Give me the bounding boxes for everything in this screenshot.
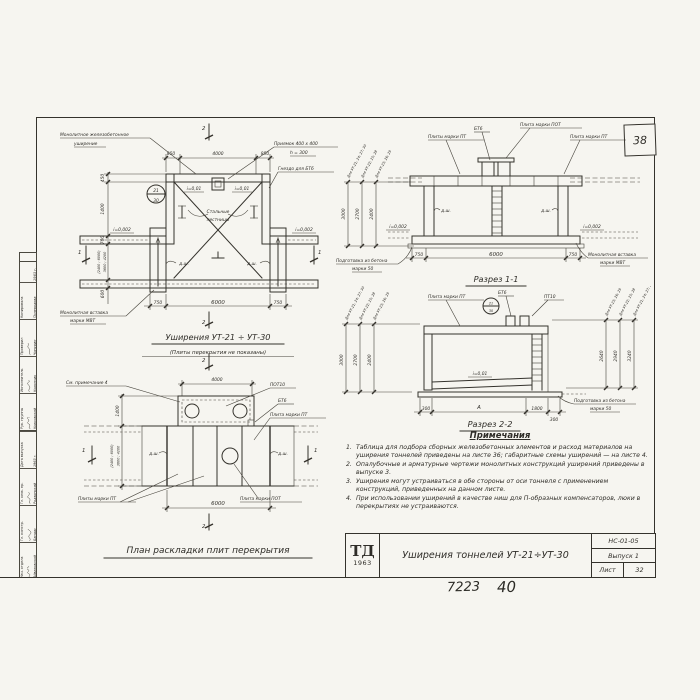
stamp-cell: Проверил Чипурин [20, 319, 37, 356]
label-plates-pt: Плиты марки ПТ [78, 474, 204, 502]
svg-text:Монолитная вставка: Монолитная вставка [60, 310, 108, 316]
pit-square [212, 178, 224, 190]
handwritten-number-2: 40 [497, 578, 517, 596]
svg-text:(2400 ; 6000): (2400 ; 6000) [110, 444, 114, 467]
svg-text:А: А [476, 405, 481, 411]
svg-text:6000: 6000 [211, 300, 225, 306]
svg-text:300: 300 [422, 406, 431, 412]
joint-label: д.ш. [540, 209, 551, 214]
section1-height-dims: Для УТ-21; 24; 27; 30 Для УТ-22; 25; 28 … [341, 144, 414, 248]
section-mark-1-left: 1 [78, 246, 90, 264]
signature-scribble [27, 417, 32, 429]
slope-label: i=0,002 [389, 224, 407, 230]
svg-text:См. примечание 4: См. примечание 4 [66, 380, 108, 386]
plan-top-drawing: 2 850 4000 850 [58, 116, 343, 362]
stamp-block-authors: Рук. группы Красовский Исполнитель Корон… [20, 261, 37, 430]
svg-text:2700: 2700 [353, 354, 359, 365]
label-monolithic-insert: Монолитная вставка марки МВТ [576, 243, 648, 266]
svg-text:Плита марки ПТ: Плита марки ПТ [428, 294, 466, 300]
svg-text:План раскладки плит перекрытия: План раскладки плит перекрытия [126, 546, 290, 556]
joint-label: д.ш. [246, 262, 257, 267]
svg-text:Уширения УТ-21 ÷ УТ-30: Уширения УТ-21 ÷ УТ-30 [165, 332, 270, 342]
svg-text:300: 300 [550, 417, 559, 423]
label-bt6: БТ6 [474, 126, 490, 160]
label-plate-pt: Плита марки ПТ [428, 294, 484, 326]
plan-bottom-drawing: 2 4000 [58, 350, 343, 572]
joint-label: д.ш. [148, 452, 159, 457]
svg-text:21: 21 [489, 302, 493, 306]
svg-text:3600 ; 4200: 3600 ; 4200 [103, 252, 107, 273]
stamp-year: 1963 г. [20, 262, 37, 282]
label-plates-pt: Плиты марки ПТ [428, 134, 484, 174]
section2-height-dims-right: Для УТ-23; 26; 29 Для УТ-22; 25; 28 Для … [552, 286, 653, 390]
section2-height-dims-left: Для УТ-21; 24; 27; 30 Для УТ-22; 25; 28 … [339, 286, 420, 394]
slope-label: i=0,01 [235, 186, 250, 192]
svg-text:2400: 2400 [369, 208, 375, 219]
stamp-cell: Нач. отдела Айвазовский [20, 542, 37, 578]
section-mark-2-top: 2 [202, 124, 213, 140]
svg-text:Монолитное железобетонное: Монолитное железобетонное [60, 132, 129, 138]
detail-mark-circle: 21 30 [483, 298, 499, 314]
svg-text:1800: 1800 [531, 406, 542, 412]
svg-text:750: 750 [569, 252, 578, 258]
svg-text:750: 750 [154, 300, 163, 306]
svg-text:4000: 4000 [212, 151, 223, 157]
section-mark-1-right: 1 [310, 246, 321, 264]
label-bt6: БТ6 [255, 398, 294, 422]
svg-text:Плиты марки ПТ: Плиты марки ПТ [428, 134, 466, 140]
svg-text:21: 21 [153, 188, 159, 194]
stamp-cell: Копировала Полеводова [20, 282, 37, 319]
section-mark-1-left: 1 [82, 446, 96, 464]
stamp-cell: Дата выпуска 1963 г. [20, 431, 37, 468]
sheet-number: 32 [624, 563, 655, 577]
signature-scribble [27, 343, 32, 355]
svg-text:1: 1 [82, 448, 85, 454]
notes-section: Примечания 1. Таблица для подбора сборны… [346, 431, 654, 512]
slope-label: i=0,01 [187, 186, 202, 192]
svg-text:2: 2 [202, 524, 206, 530]
svg-text:Подготовка из бетона: Подготовка из бетона [336, 258, 388, 264]
svg-text:750: 750 [274, 300, 283, 306]
logo-year: 1963 [353, 559, 372, 567]
svg-text:марки МВТ: марки МВТ [600, 260, 625, 266]
joint-label: д.ш. [440, 209, 451, 214]
drawing-title: Уширения тоннелей УТ-21÷УТ-30 [380, 534, 591, 577]
svg-text:700: 700 [100, 236, 106, 245]
sheet-label: Лист [592, 563, 624, 577]
svg-text:2400: 2400 [367, 354, 373, 365]
section1-title: Разрез 1-1 [466, 274, 526, 286]
label-prep-concrete: Подготовка из бетона марки 50 [558, 396, 636, 412]
plan-top-dim-bottom: 750 6000 750 [144, 294, 292, 310]
slope-label: i=0,002 [583, 224, 601, 230]
stairs-label: Стальные [207, 209, 230, 215]
label-monolithic-widening: Монолитное железобетонное уширение [60, 132, 196, 174]
svg-text:Плита марки ПТ: Плита марки ПТ [570, 134, 608, 140]
svg-text:4000: 4000 [211, 377, 222, 383]
svg-text:2700: 2700 [355, 208, 361, 219]
note-item: 3. Уширения могут устраиваться в обе сто… [346, 478, 654, 494]
ground-lines [388, 178, 640, 238]
label-socket-bt6: Гнездо для БТ6 [269, 166, 334, 188]
svg-text:БТ6: БТ6 [498, 290, 507, 296]
svg-text:6000: 6000 [489, 252, 503, 258]
svg-text:марки 50: марки 50 [352, 266, 373, 272]
svg-text:750: 750 [415, 252, 424, 258]
svg-text:Плиты марки ПТ: Плиты марки ПТ [78, 496, 116, 502]
svg-text:30: 30 [489, 309, 493, 313]
plan-bottom-dim-left: 1400 (2400 ; 6000) 3600 ; 4200 [110, 394, 178, 490]
svg-text:3600 ; 4200: 3600 ; 4200 [117, 446, 121, 467]
svg-text:3240: 3240 [627, 350, 633, 361]
svg-text:Плита марки ПТ: Плита марки ПТ [270, 412, 308, 418]
label-plate-pt: Плита марки ПТ [564, 134, 626, 174]
series-code: НС-01-05 [592, 534, 655, 549]
svg-text:Приямок 400 х 400: Приямок 400 х 400 [274, 141, 318, 147]
svg-text:1: 1 [78, 250, 81, 256]
stamp-sidebar: Нач. отдела Айвазовский Гл. констр. Банд… [19, 252, 37, 578]
svg-text:уширение: уширение [73, 142, 98, 147]
label-bt6: БТ6 [498, 290, 514, 316]
section-mark-2-top: 2 [202, 354, 213, 370]
svg-text:2640: 2640 [599, 350, 605, 361]
slope-label: i=0,002 [113, 227, 131, 233]
svg-text:3000: 3000 [341, 208, 347, 219]
svg-text:1: 1 [318, 250, 321, 256]
notes-heading: Примечания [346, 431, 654, 441]
stamp-cell: Гл. констр. Бандас [20, 505, 37, 542]
stairs-label: лестницы [206, 218, 230, 223]
svg-text:БТ6: БТ6 [474, 126, 483, 132]
ladder [532, 334, 548, 392]
svg-text:6000: 6000 [211, 501, 225, 507]
signature-scribble [27, 380, 32, 392]
label-plate-pot: Плита марки ПОТ [234, 464, 302, 502]
note-item: 4. При использовании уширений в качестве… [346, 495, 654, 511]
signature-scribble [27, 492, 32, 504]
svg-text:2940: 2940 [613, 350, 619, 361]
title-block: ТД 1963 Уширения тоннелей УТ-21÷УТ-30 НС… [345, 533, 656, 578]
svg-text:1400: 1400 [100, 203, 106, 214]
handwritten-number-1: 7223 [447, 580, 480, 596]
logo-td: ТД [350, 544, 375, 559]
svg-text:2: 2 [202, 126, 206, 132]
svg-text:ПОТ10: ПОТ10 [270, 382, 285, 388]
issue-label: Выпуск 1 [592, 549, 655, 564]
stamp-rotated-strip: Нач. отдела Айвазовский Гл. констр. Банд… [20, 253, 37, 578]
section2-structure [418, 316, 586, 397]
svg-text:(2400 ; 6000): (2400 ; 6000) [97, 250, 101, 273]
svg-text:h = 300: h = 300 [290, 150, 308, 156]
svg-text:450: 450 [100, 174, 106, 183]
section-1-drawing: Для УТ-21; 24; 27; 30 Для УТ-22; 25; 28 … [334, 116, 656, 294]
stamp-block-approvals: Нач. отдела Айвазовский Гл. констр. Банд… [20, 430, 37, 578]
section-mark-2-bottom: 2 [202, 312, 213, 328]
svg-text:Плита марки ПОТ: Плита марки ПОТ [240, 496, 281, 502]
title-block-logo: ТД 1963 [346, 534, 380, 577]
section-2-drawing: Для УТ-21; 24; 27; 30 Для УТ-22; 25; 28 … [334, 286, 656, 438]
note-item: 1. Таблица для подбора сборных железобет… [346, 444, 654, 460]
svg-text:Подготовка из бетона: Подготовка из бетона [574, 398, 626, 404]
svg-text:марки МВТ: марки МВТ [70, 318, 95, 324]
svg-text:Гнездо для БТ6: Гнездо для БТ6 [278, 166, 314, 172]
section-mark-2-bottom: 2 [202, 514, 213, 530]
svg-text:Плита марки ПОТ: Плита марки ПОТ [520, 122, 561, 128]
svg-text:Монолитная вставка: Монолитная вставка [588, 252, 636, 258]
svg-text:1400: 1400 [115, 405, 121, 416]
svg-text:850: 850 [261, 151, 270, 157]
widening-plates [178, 396, 254, 426]
note-item: 2. Опалубочные и арматурные чертежи моно… [346, 461, 654, 477]
notes-list: 1. Таблица для подбора сборных железобет… [346, 444, 654, 511]
stamp-cell: Исполнитель Корончик [20, 356, 37, 393]
joint-label: д.ш. [178, 262, 189, 267]
stamp-cell: Гл. инж. пр. Родзинский [20, 468, 37, 505]
svg-text:2: 2 [202, 358, 206, 364]
drawing-sheet: 38 Нач. отдела Айвазовский Гл. констр. Б… [0, 0, 700, 700]
title-block-codes: НС-01-05 Выпуск 1 Лист 32 [591, 534, 655, 577]
slope-label: i=0,002 [295, 227, 313, 233]
label-see-note: См. примечание 4 [66, 380, 180, 402]
joint-label: д.ш. [277, 452, 288, 457]
detail-mark-circle: 21 30 [147, 185, 165, 204]
label-monolithic-insert: Монолитная вставка марки МВТ [60, 290, 154, 324]
section-mark-1-right: 1 [304, 446, 317, 464]
svg-text:30: 30 [153, 198, 159, 204]
plan-bottom-dim-top: 4000 [178, 377, 256, 396]
svg-text:ПТ10: ПТ10 [544, 294, 556, 300]
plan-bottom-title: План раскладки плит перекрытия [104, 546, 312, 558]
section1-dim-bottom: 750 6000 750 [406, 248, 586, 262]
label-prep-concrete: Подготовка из бетона марки 50 [336, 247, 412, 272]
svg-text:Разрез 2-2: Разрез 2-2 [468, 419, 513, 429]
insert-pilasters [150, 228, 286, 292]
plan-top-dim-top: 850 4000 850 [162, 151, 274, 174]
svg-text:1: 1 [314, 448, 317, 454]
svg-text:Разрез 1-1: Разрез 1-1 [474, 274, 519, 284]
svg-text:600: 600 [100, 290, 106, 299]
svg-text:марки 50: марки 50 [590, 406, 611, 412]
stamp-cell: Рук. группы Красовский [20, 393, 37, 430]
label-pt10: ПТ10 [532, 294, 564, 316]
ladder [492, 186, 502, 236]
signature-scribble [27, 529, 32, 541]
slope-label: i=0,01 [473, 371, 488, 377]
svg-text:БТ6: БТ6 [278, 398, 287, 404]
label-pit: Приямок 400 х 400 h = 300 [228, 141, 338, 179]
sheet-row: Лист 32 [592, 563, 655, 577]
section2-title: Разрез 2-2 [460, 419, 520, 431]
